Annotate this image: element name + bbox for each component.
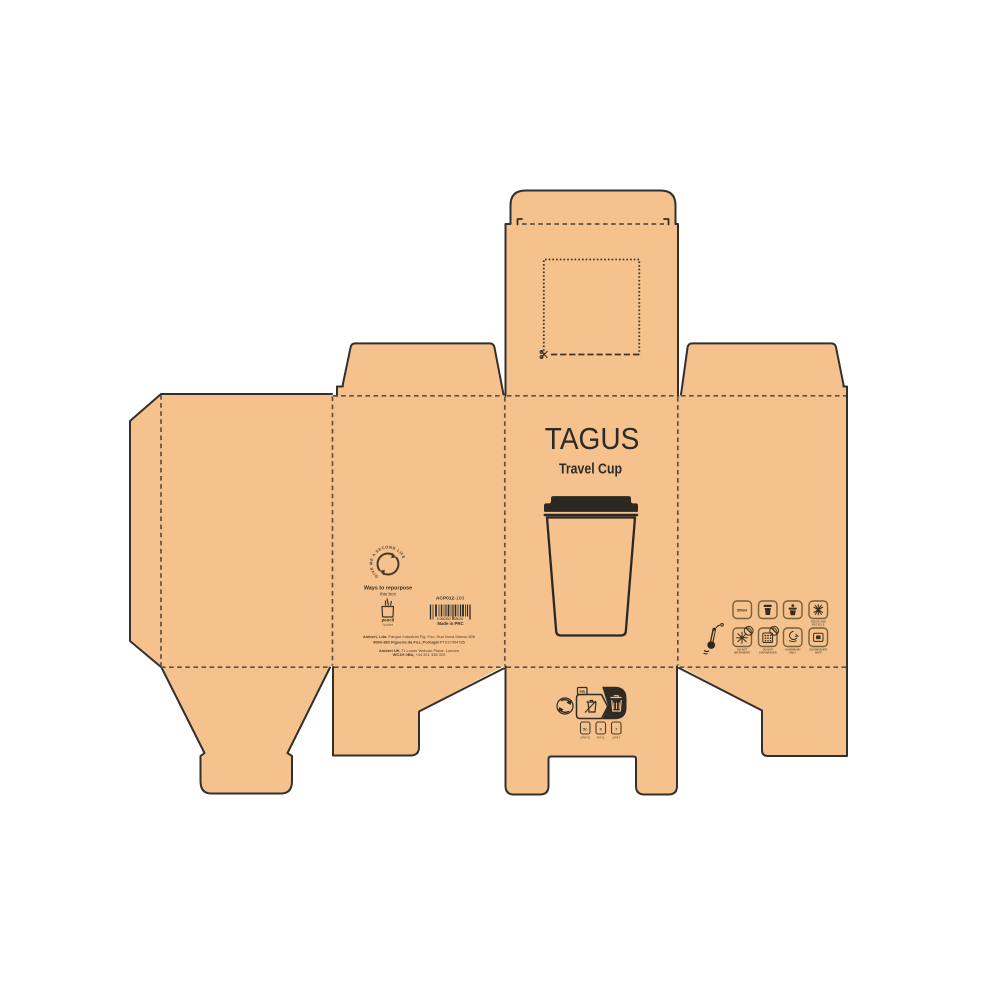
- svg-text:this box: this box: [380, 592, 397, 597]
- svg-text:MICROWAVE: MICROWAVE: [734, 650, 750, 654]
- svg-text:C/PAP 81: C/PAP 81: [580, 737, 591, 740]
- svg-text:ACP012-103: ACP012-103: [436, 595, 465, 601]
- svg-text:5c: 5c: [583, 727, 588, 732]
- svg-text:ONLY: ONLY: [789, 650, 796, 654]
- svg-text:500ml: 500ml: [737, 608, 747, 612]
- svg-text:Ambert, Lda. Parque Industrial: Ambert, Lda. Parque Industrial Fig. Foz,…: [363, 634, 476, 639]
- svg-text:LDPE 4: LDPE 4: [612, 737, 621, 740]
- svg-text:DISHWASHER: DISHWASHER: [759, 650, 777, 654]
- svg-text:Made in PRC: Made in PRC: [437, 621, 463, 626]
- svg-text:3090-380 Figueira da Foz, Port: 3090-380 Figueira da Foz, Portugal PT037…: [373, 640, 466, 645]
- svg-text:WC1H 0Bb, +44 321 338 320: WC1H 0Bb, +44 321 338 320: [393, 652, 447, 657]
- svg-text:FR: FR: [580, 689, 585, 694]
- svg-text:PAP 21: PAP 21: [597, 737, 606, 740]
- svg-text:Travel Cup: Travel Cup: [559, 462, 622, 478]
- svg-text:holder: holder: [383, 623, 394, 627]
- svg-text:TAGUS: TAGUS: [545, 422, 640, 456]
- svg-text:RECYCLE: RECYCLE: [812, 622, 825, 626]
- svg-text:pencil: pencil: [381, 618, 394, 623]
- svg-text:SAFE: SAFE: [815, 650, 822, 654]
